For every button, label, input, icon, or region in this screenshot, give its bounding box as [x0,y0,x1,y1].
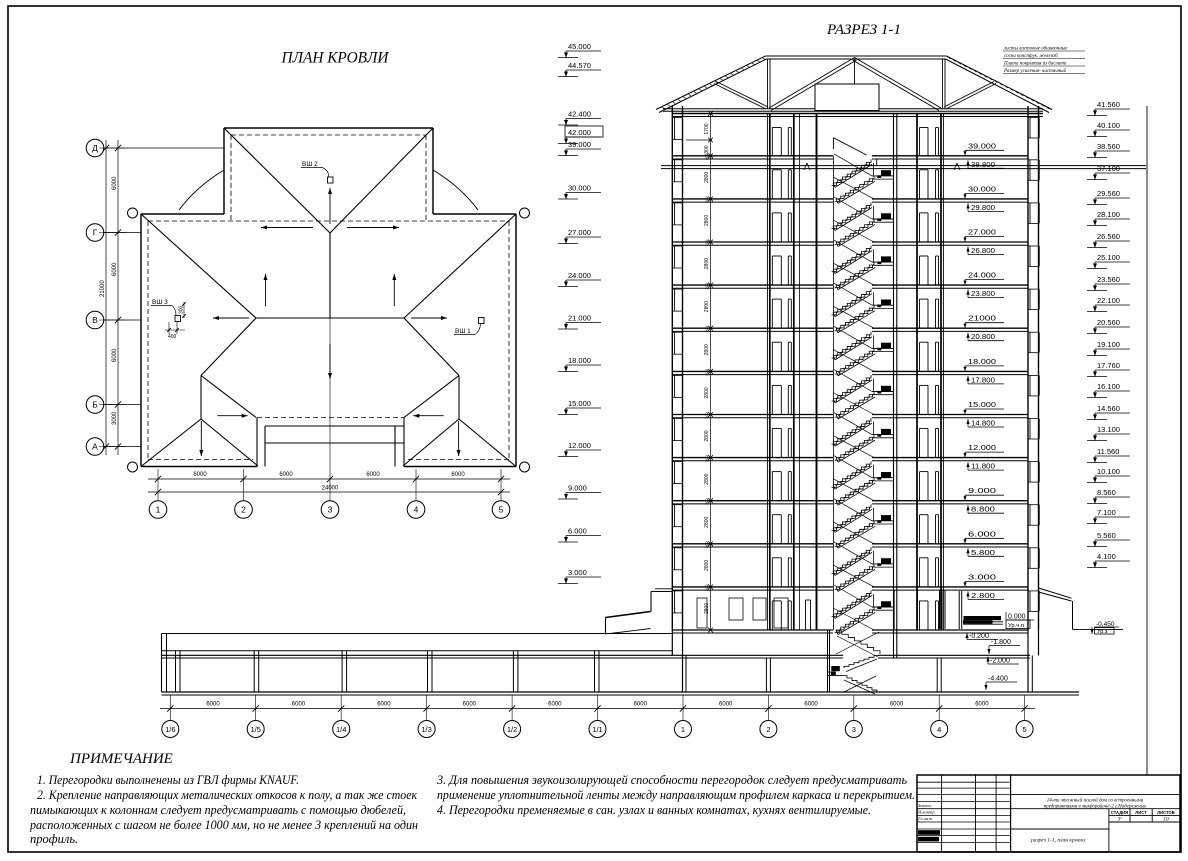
svg-text:-4.400: -4.400 [988,676,1008,683]
svg-text:39.000: 39.000 [968,141,996,150]
svg-text:200: 200 [704,411,709,418]
svg-text:3: 3 [328,505,333,515]
svg-text:Н.контр.: Н.контр. [917,810,936,815]
svg-text:6000: 6000 [279,472,293,478]
svg-text:200: 200 [704,454,709,461]
svg-text:38.800: 38.800 [971,160,995,169]
svg-text:200: 200 [704,498,709,505]
svg-text:200: 200 [704,239,709,246]
svg-text:3: 3 [852,725,856,734]
svg-text:14.800: 14.800 [971,419,995,428]
svg-text:Г: Г [93,228,98,238]
svg-text:8.800: 8.800 [971,505,995,514]
svg-text:13.100: 13.100 [1097,425,1120,434]
svg-text:0.000: 0.000 [1008,614,1026,621]
svg-text:2800: 2800 [704,603,710,614]
svg-text:листы листовые обшивочные: листы листовые обшивочные [1003,47,1068,52]
svg-text:РАЗРЕЗ 1-1: РАЗРЕЗ 1-1 [826,22,901,38]
svg-text:1/6: 1/6 [165,725,175,734]
svg-text:23.800: 23.800 [971,289,995,298]
svg-text:СТАДИЯ: СТАДИЯ [1111,810,1128,815]
svg-text:10.100: 10.100 [1097,467,1120,476]
svg-text:1/3: 1/3 [421,725,431,734]
svg-text:6.000: 6.000 [568,527,587,536]
svg-text:ВШ 2: ВШ 2 [302,161,318,168]
svg-text:21.000: 21.000 [568,314,591,323]
svg-text:7.100: 7.100 [1097,508,1116,517]
svg-text:30.000: 30.000 [568,184,591,193]
svg-text:2800: 2800 [704,516,710,527]
svg-text:27.000: 27.000 [968,228,996,237]
svg-text:5: 5 [499,505,504,515]
svg-text:18.000: 18.000 [968,357,996,366]
svg-text:200: 200 [704,282,709,289]
svg-text:26.800: 26.800 [971,246,995,255]
svg-text:300: 300 [179,305,185,314]
svg-text:пимыкающих к колоннам следует: пимыкающих к колоннам следует предусматр… [30,803,406,817]
svg-text:6000: 6000 [206,702,220,708]
svg-text:ЛИСТОВ: ЛИСТОВ [1157,810,1175,815]
svg-text:12.000: 12.000 [968,443,996,452]
svg-text:25.100: 25.100 [1097,253,1120,262]
svg-text:14-ти этажный жилой дом со вст: 14-ти этажный жилой дом со встроенными [1047,798,1144,804]
svg-text:Б: Б [92,400,98,410]
svg-text:200: 200 [704,584,709,591]
svg-text:6.000: 6.000 [968,529,996,538]
svg-text:24.000: 24.000 [568,271,591,280]
svg-text:применение уплотнительной лент: применение уплотнительной ленты между на… [437,788,915,802]
svg-text:400: 400 [168,334,177,340]
svg-text:2800: 2800 [704,344,710,355]
svg-text:1700: 1700 [704,123,710,134]
svg-text:Д: Д [92,143,98,153]
svg-text:В: В [92,315,98,325]
svg-text:24000: 24000 [322,486,339,492]
svg-text:6000: 6000 [548,702,562,708]
svg-text:6000: 6000 [634,702,648,708]
svg-text:23.560: 23.560 [1097,275,1120,284]
svg-text:21000: 21000 [968,314,996,323]
svg-text:1/1: 1/1 [592,725,602,734]
svg-text:24.000: 24.000 [968,271,996,280]
svg-text:4.100: 4.100 [1097,552,1116,561]
svg-text:6000: 6000 [451,472,465,478]
svg-text:38.560: 38.560 [1097,142,1120,151]
svg-text:2800: 2800 [704,473,710,484]
svg-text:1. Перегородки выполненены из: 1. Перегородки выполненены из ГВЛ фирмы … [37,773,299,787]
svg-text:2.800: 2.800 [971,591,995,600]
svg-text:16.100: 16.100 [1097,382,1120,391]
svg-text:3.000: 3.000 [968,572,996,581]
svg-text:3000: 3000 [112,411,118,425]
svg-text:45.000: 45.000 [568,42,591,51]
svg-text:30.000: 30.000 [968,184,996,193]
svg-text:ВШ 1: ВШ 1 [455,328,471,335]
svg-text:200: 200 [704,196,709,203]
svg-text:5.560: 5.560 [1097,531,1116,540]
svg-text:15.000: 15.000 [568,399,591,408]
svg-text:4: 4 [937,725,941,734]
svg-text:расположенных с шагом не более: расположенных с шагом не более 1000 мм, … [29,818,418,832]
svg-text:-0.200: -0.200 [969,633,989,640]
svg-text:6000: 6000 [975,702,989,708]
svg-text:19.100: 19.100 [1097,340,1120,349]
svg-text:12.000: 12.000 [568,441,591,450]
svg-text:10: 10 [1163,817,1169,823]
svg-text:9.000: 9.000 [568,484,587,493]
svg-text:9.000: 9.000 [968,486,996,495]
svg-text:6000: 6000 [804,702,818,708]
svg-text:22.100: 22.100 [1097,296,1120,305]
svg-text:-1.800: -1.800 [991,639,1011,646]
svg-text:28.100: 28.100 [1097,210,1120,219]
svg-text:200: 200 [704,368,709,375]
svg-text:ВШ 3: ВШ 3 [152,299,168,306]
svg-text:2800: 2800 [704,172,710,183]
svg-text:6000: 6000 [377,702,391,708]
svg-text:6000: 6000 [890,702,904,708]
svg-text:3.000: 3.000 [568,568,587,577]
svg-text:1/4: 1/4 [336,725,346,734]
svg-text:2: 2 [766,725,770,734]
svg-text:профиль.: профиль. [30,832,78,846]
svg-text:6000: 6000 [112,262,118,276]
svg-text:сосна конструк. железоб.: сосна конструк. железоб. [1004,54,1059,59]
svg-text:Ур.з: Ур.з [1097,629,1108,635]
svg-text:1: 1 [156,505,161,515]
svg-text:20.560: 20.560 [1097,318,1120,327]
svg-text:А: А [92,442,98,452]
svg-text:2800: 2800 [704,387,710,398]
svg-text:1/2: 1/2 [507,725,517,734]
svg-text:14.560: 14.560 [1097,404,1120,413]
svg-text:1/5: 1/5 [250,725,260,734]
svg-text:2800: 2800 [704,560,710,571]
svg-text:15.000: 15.000 [968,400,996,409]
svg-text:8.560: 8.560 [1097,488,1116,497]
svg-text:ПРИМЕЧАНИЕ: ПРИМЕЧАНИЕ [69,751,173,767]
svg-text:Гл.инж.: Гл.инж. [917,816,934,821]
svg-text:42.400: 42.400 [568,110,591,119]
svg-text:4. Перегородки пременяемые в с: 4. Перегородки пременяемые в сан. узлах … [437,803,871,817]
svg-text:разрез 1-1, план кровли: разрез 1-1, план кровли [1030,838,1085,844]
svg-text:29.560: 29.560 [1097,189,1120,198]
svg-text:200: 200 [704,541,709,548]
svg-text:6000: 6000 [193,472,207,478]
svg-text:ЛИСТ: ЛИСТ [1135,810,1147,815]
svg-text:2800: 2800 [704,258,710,269]
svg-text:6000: 6000 [463,702,477,708]
svg-text:18.000: 18.000 [568,356,591,365]
svg-text:ПЛАН КРОВЛИ: ПЛАН КРОВЛИ [281,49,390,66]
svg-text:29.800: 29.800 [971,203,995,212]
svg-text:1: 1 [681,725,685,734]
svg-text:6000: 6000 [366,472,380,478]
svg-text:Размер усиления- частичный: Размер усиления- частичный [1003,68,1066,74]
svg-text:Плита покрытия из баслита: Плита покрытия из баслита [1003,62,1067,67]
svg-text:17.800: 17.800 [971,375,995,384]
svg-text:11.560: 11.560 [1097,447,1119,456]
svg-text:39.000: 39.000 [568,140,591,149]
svg-text:5: 5 [1023,725,1027,734]
svg-text:6000: 6000 [292,702,306,708]
svg-text:40.100: 40.100 [1097,121,1120,130]
svg-text:4: 4 [414,505,419,515]
svg-text:6000: 6000 [719,702,733,708]
svg-text:42.000: 42.000 [568,128,591,137]
svg-text:11.800: 11.800 [971,462,995,471]
svg-text:2800: 2800 [704,430,710,441]
svg-text:5.800: 5.800 [971,548,995,557]
svg-text:27.000: 27.000 [568,228,591,237]
svg-text:200: 200 [704,153,709,160]
svg-text:6000: 6000 [112,176,118,190]
svg-text:41.560: 41.560 [1097,100,1120,109]
svg-text:2800: 2800 [704,215,710,226]
svg-text:17.760: 17.760 [1097,361,1120,370]
svg-text:200: 200 [704,325,709,332]
svg-text:3. Для повышения звукоизолирую: 3. Для повышения звукоизолирующей способ… [436,773,907,787]
svg-text:20.800: 20.800 [971,332,995,341]
svg-text:2. Крепление направляющих мета: 2. Крепление направляющих металических о… [37,788,417,802]
svg-text:Заказч.: Заказч. [918,803,932,808]
svg-text:2: 2 [241,505,246,515]
svg-text:44.570: 44.570 [568,61,591,70]
svg-text:21000: 21000 [100,280,106,297]
svg-text:6000: 6000 [112,348,118,362]
svg-text:2800: 2800 [704,301,710,312]
svg-text:Ур.ч.п: Ур.ч.п [1008,623,1024,629]
svg-text:26.560: 26.560 [1097,232,1120,241]
svg-text:-2.000: -2.000 [990,658,1010,665]
